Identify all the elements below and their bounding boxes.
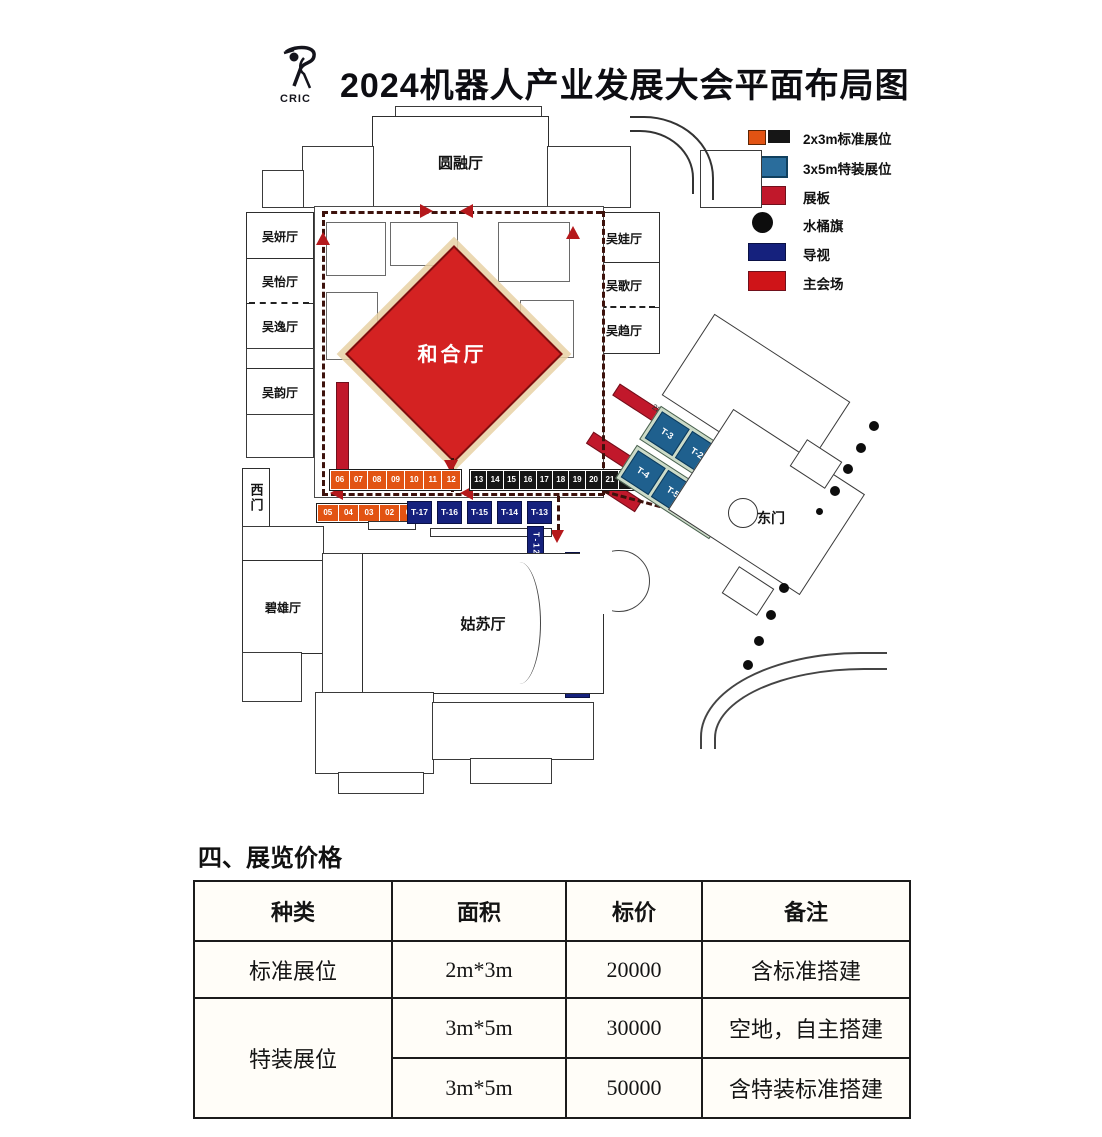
pricing-section-title: 四、展览价格: [198, 838, 342, 873]
sign-box: T-16: [437, 501, 462, 524]
water-bucket-flag-dot: [816, 508, 823, 515]
legend-swatch-standard-orange: [748, 130, 766, 145]
sign-box: T-15: [467, 501, 492, 524]
building-outline-segment: [246, 348, 314, 370]
water-bucket-flag-dot: [779, 583, 789, 593]
room-label: 吴韵厅: [262, 384, 298, 401]
room-wuyanting: 吴妍厅: [246, 212, 314, 260]
building-outline-segment: [302, 146, 374, 208]
booth: 17: [537, 471, 552, 489]
booth: 16: [520, 471, 535, 489]
cell-area: 3m*5m: [392, 1058, 566, 1118]
legend-label-main-hall: 主会场: [803, 273, 844, 293]
building-outline-segment: [315, 692, 434, 774]
booth: 15: [504, 471, 519, 489]
west-gate-room: 西门: [242, 468, 270, 528]
room-wuyunting: 吴韵厅: [246, 368, 314, 416]
cell-note: 空地，自主搭建: [702, 998, 910, 1058]
room-label: 碧雄厅: [265, 599, 301, 616]
route-line-left: [322, 211, 325, 495]
booth: 12: [442, 471, 460, 489]
room-heheting-label: 和合厅: [377, 338, 527, 367]
building-outline-segment: [547, 146, 631, 208]
water-bucket-flag-dot: [830, 486, 840, 496]
room-label: 吴娃厅: [606, 230, 642, 247]
booth: 21: [602, 471, 617, 489]
page: CRIC 2024机器人产业发展大会平面布局图 2x3m标准展位 3x5m特装展…: [0, 0, 1102, 1137]
booth: 06: [331, 471, 349, 489]
revolving-door: [728, 498, 758, 528]
room-gusuting: 姑苏厅: [362, 553, 604, 694]
booth: 04: [339, 505, 359, 521]
standard-booth-row-b: 13 14 15 16 17 18 19 20 21 22: [469, 469, 636, 491]
room-label: 吴逸厅: [262, 318, 298, 335]
stage-curve: [498, 562, 541, 684]
route-line-stub: [557, 496, 560, 530]
water-bucket-flag-dot: [869, 421, 879, 431]
room-label: 吴趋厅: [606, 322, 642, 339]
booth: 13: [471, 471, 486, 489]
water-bucket-flag-dot: [743, 660, 753, 670]
route-arrow-right: [420, 204, 433, 218]
route-arrow-down: [550, 530, 564, 543]
booth: 05: [318, 505, 338, 521]
cell-price: 50000: [566, 1058, 702, 1118]
route-line-right: [602, 211, 605, 495]
booth: 02: [380, 505, 400, 521]
col-header-type: 种类: [194, 881, 392, 941]
circular-steps-mask: [580, 548, 612, 614]
west-gate-label: 西门: [247, 483, 266, 513]
building-outline-segment: [432, 702, 594, 760]
sign-box: T-13: [527, 501, 552, 524]
table-header-row: 种类 面积 标价 备注: [194, 881, 910, 941]
building-outline-segment: [262, 170, 304, 208]
cell-note: 含标准搭建: [702, 941, 910, 998]
interior-room: [498, 222, 570, 282]
cell-area: 2m*3m: [392, 941, 566, 998]
booth: 03: [359, 505, 379, 521]
standard-booth-row-a: 06 07 08 09 10 11 12: [329, 469, 462, 491]
cell-area: 3m*5m: [392, 998, 566, 1058]
water-bucket-flag-dot: [766, 610, 776, 620]
legend-swatch-sign: [748, 243, 786, 261]
display-panel: [336, 382, 349, 480]
booth: 20: [586, 471, 601, 489]
cric-logo-icon: [280, 44, 326, 94]
route-arrow-up: [316, 232, 330, 245]
legend-label-special: 3x5m特装展位: [803, 158, 892, 178]
table-row: 标准展位 2m*3m 20000 含标准搭建: [194, 941, 910, 998]
room-label: 圆融厅: [438, 152, 483, 173]
legend-swatch-main-hall: [748, 271, 786, 291]
booth: 18: [553, 471, 568, 489]
cell-price: 30000: [566, 998, 702, 1058]
water-bucket-flag-dot: [856, 443, 866, 453]
legend-label-standard: 2x3m标准展位: [803, 128, 892, 148]
building-outline-segment: [242, 526, 324, 562]
pricing-table: 种类 面积 标价 备注 标准展位 2m*3m 20000 含标准搭建 特装展位 …: [193, 880, 909, 1119]
building-outline-segment: [242, 652, 302, 702]
building-outline-segment: [338, 772, 424, 794]
water-bucket-flag-dot: [754, 636, 764, 646]
route-arrow-left: [460, 204, 473, 218]
sign-row: T-17 T-16 T-15 T-14 T-13: [407, 501, 552, 524]
room-yuanrongting: 圆融厅: [372, 116, 549, 208]
booth: 10: [405, 471, 423, 489]
col-header-area: 面积: [392, 881, 566, 941]
col-header-note: 备注: [702, 881, 910, 941]
legend-swatch-standard-black: [768, 130, 790, 143]
booth: 14: [487, 471, 502, 489]
room-wuyiting: 吴怡厅: [246, 258, 314, 305]
room-label: 吴歌厅: [606, 277, 642, 294]
booth: 07: [350, 471, 368, 489]
dashed-partition: [249, 302, 309, 304]
table-row: 特装展位 3m*5m 30000 空地，自主搭建: [194, 998, 910, 1058]
col-header-price: 标价: [566, 881, 702, 941]
cric-logo-text: CRIC: [280, 93, 338, 105]
cric-logo: CRIC: [280, 44, 338, 106]
sign-box: T-14: [497, 501, 522, 524]
room-label: 吴妍厅: [262, 228, 298, 245]
room-wuyibting: 吴逸厅: [246, 303, 314, 350]
cell-type-merged: 特装展位: [194, 998, 392, 1118]
booth: 08: [368, 471, 386, 489]
route-arrow-up: [566, 226, 580, 239]
interior-room: [326, 222, 386, 276]
room-bixiongting: 碧雄厅: [242, 560, 324, 654]
booth: 19: [569, 471, 584, 489]
legend-label-sign: 导视: [803, 244, 830, 264]
water-bucket-flag-dot: [843, 464, 853, 474]
room-label: 吴怡厅: [262, 273, 298, 290]
booth: 09: [387, 471, 405, 489]
cell-note: 含特装标准搭建: [702, 1058, 910, 1118]
page-title: 2024机器人产业发展大会平面布局图: [340, 58, 910, 107]
legend-swatch-flag: [752, 212, 773, 233]
east-gate-label: 东门: [757, 508, 785, 528]
building-outline-segment: [322, 553, 364, 694]
sign-box: T-17: [407, 501, 432, 524]
legend-label-flag: 水桶旗: [803, 215, 844, 235]
building-outline-segment: [246, 414, 314, 458]
building-outline-segment: [470, 758, 552, 784]
cell-type: 标准展位: [194, 941, 392, 998]
booth: 11: [424, 471, 442, 489]
cell-price: 20000: [566, 941, 702, 998]
legend-label-panel: 展板: [803, 187, 830, 207]
